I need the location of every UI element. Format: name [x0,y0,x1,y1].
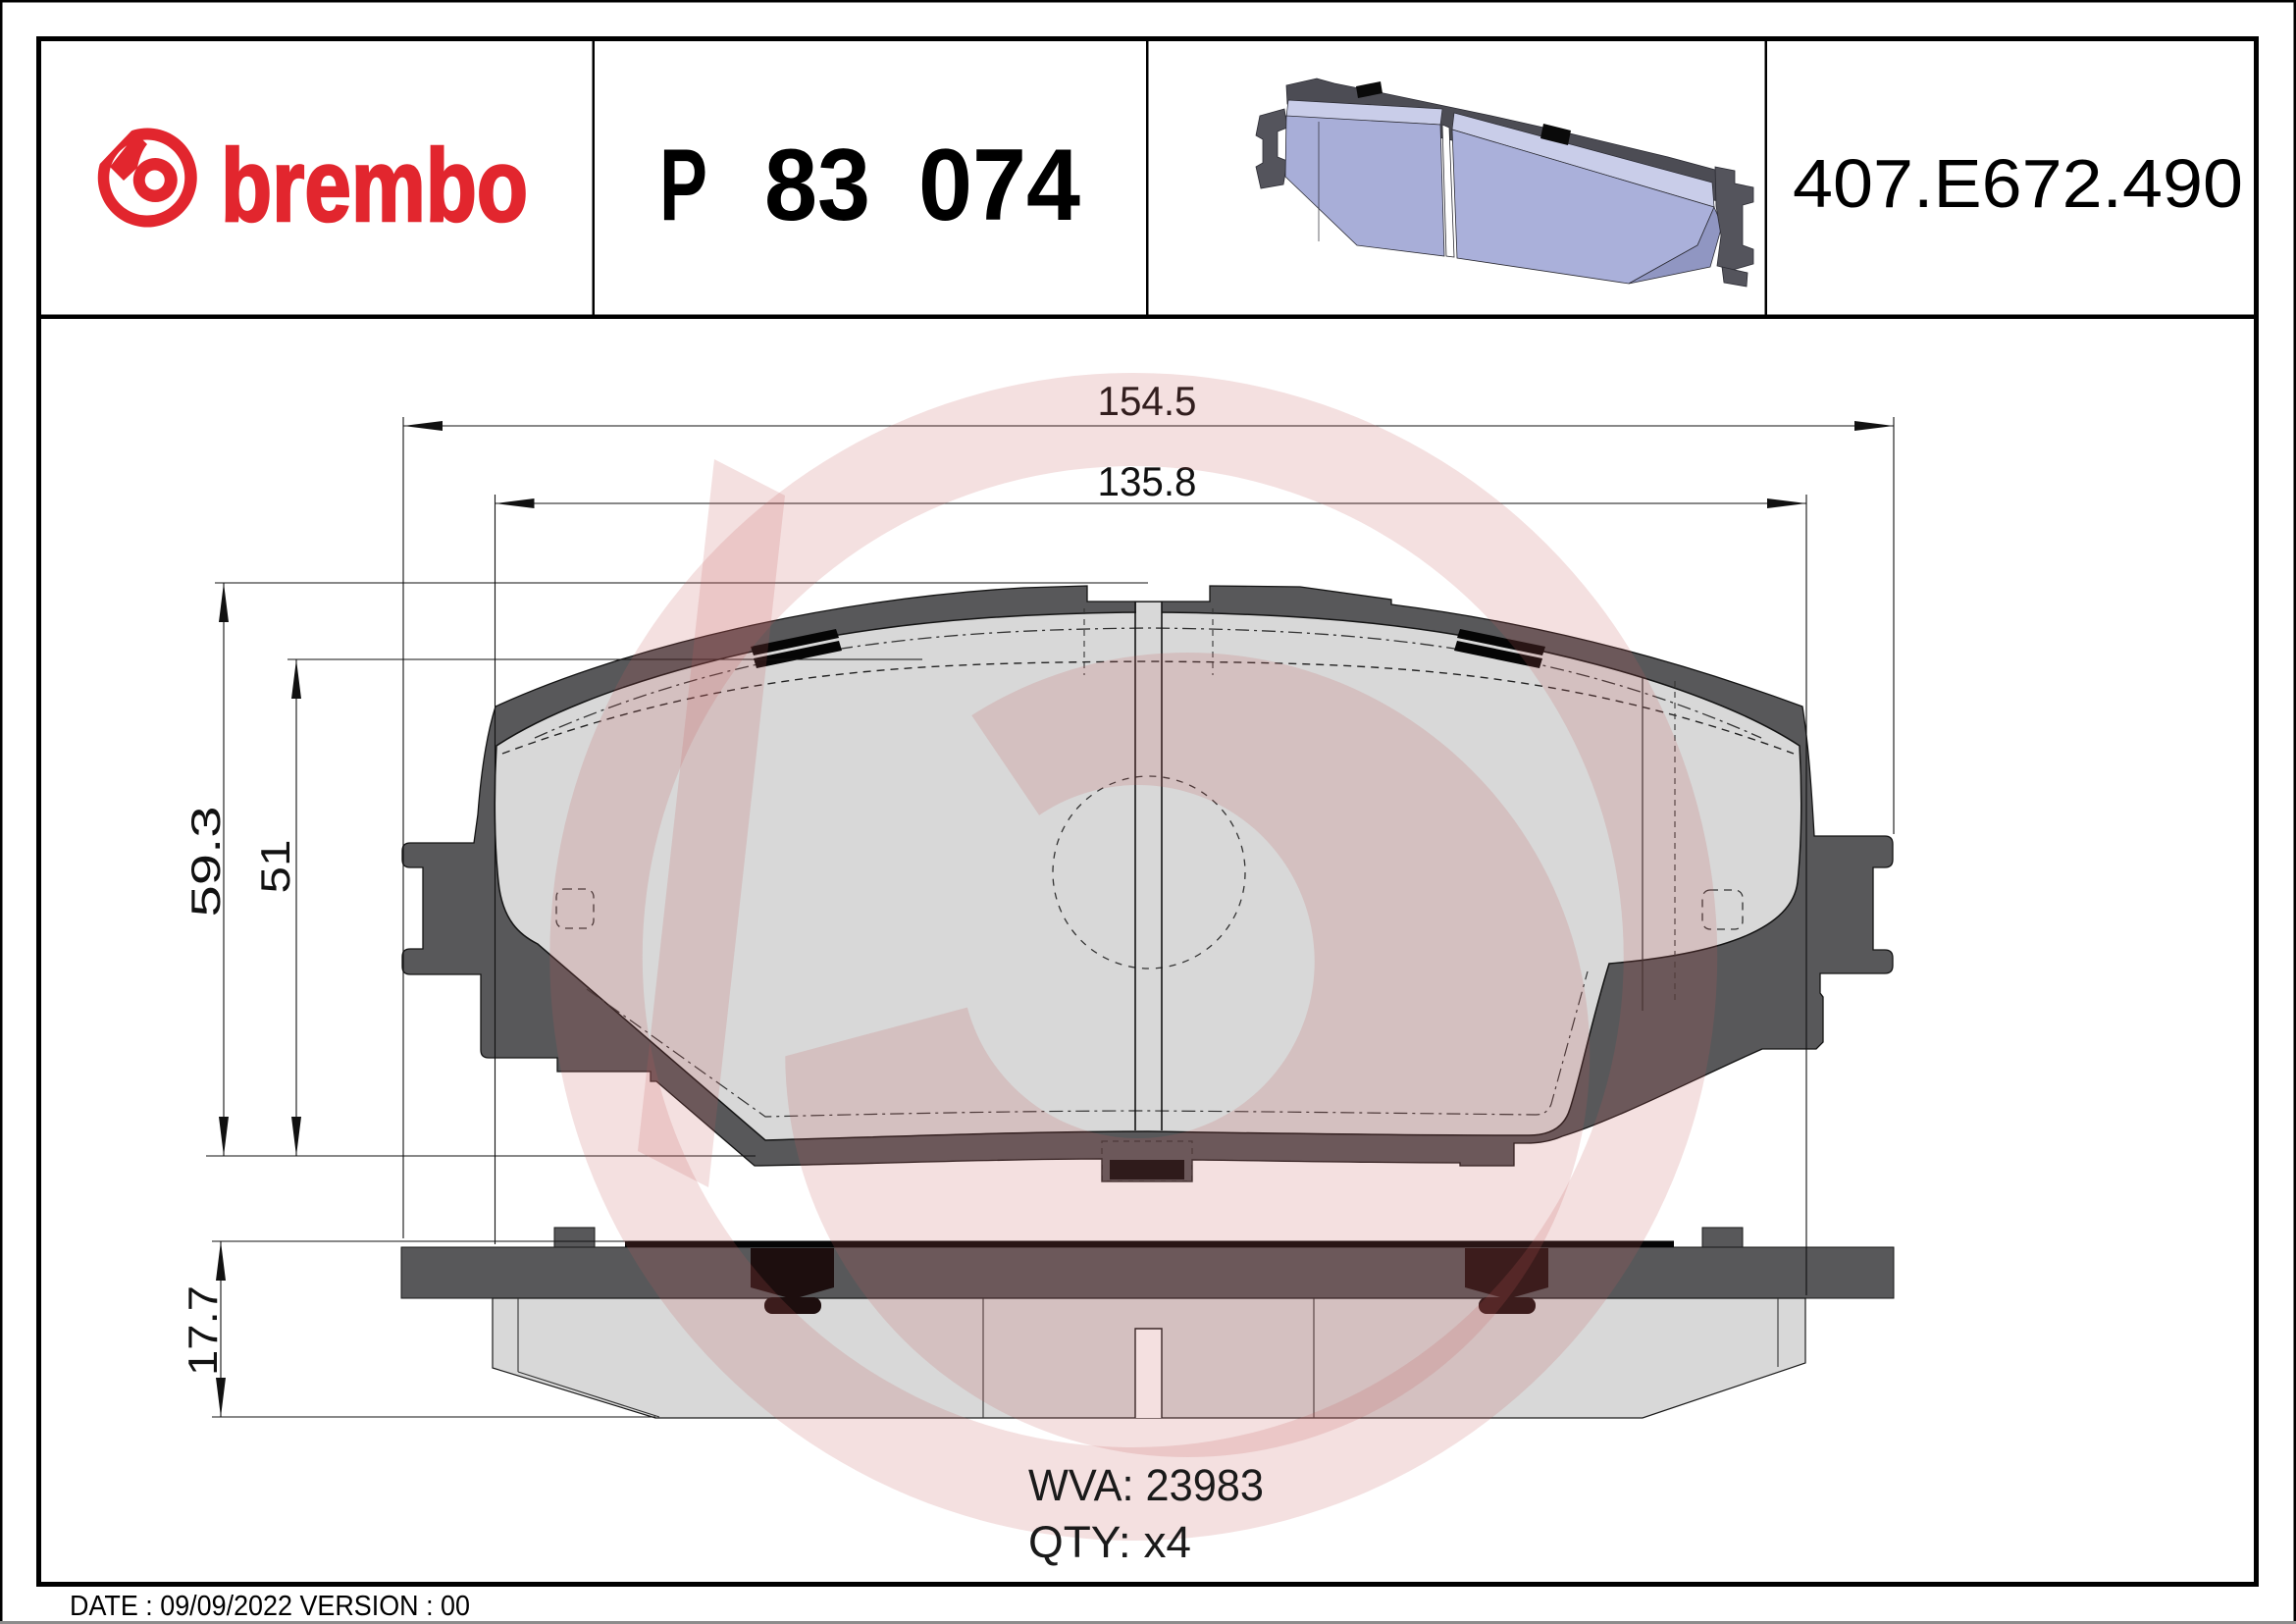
svg-text:407.E672.490: 407.E672.490 [1793,145,2243,222]
svg-text:17.7: 17.7 [181,1285,226,1376]
svg-text:83: 83 [764,129,870,242]
svg-text:51: 51 [253,840,298,894]
svg-text:59.3: 59.3 [183,807,229,917]
svg-text:QTY: x4: QTY: x4 [1028,1517,1191,1567]
svg-text:P: P [659,129,707,242]
svg-text:074: 074 [918,129,1080,242]
svg-text:WVA: 23983: WVA: 23983 [1028,1460,1264,1510]
svg-text:brembo: brembo [221,129,528,243]
svg-text:DATE : 09/09/2022 VERSION : 00: DATE : 09/09/2022 VERSION : 00 [70,1591,470,1622]
